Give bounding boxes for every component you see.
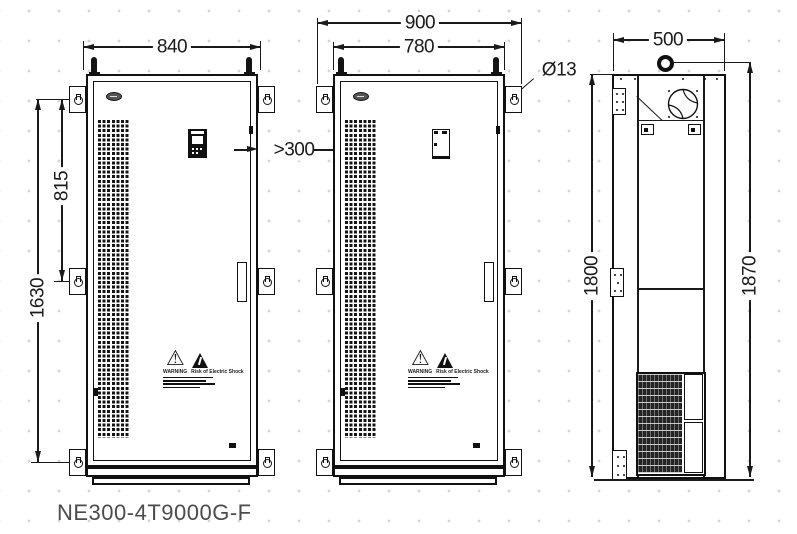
model-label: NE300-4T9000G-F	[57, 500, 252, 526]
cabinet-plinth	[339, 477, 497, 485]
dim-500-label: 500	[649, 30, 687, 51]
door-handle	[237, 262, 247, 302]
keyhole-icon	[510, 276, 517, 287]
hole-diameter-label: Ø13	[538, 60, 580, 81]
keyhole-icon	[74, 94, 81, 105]
warning-triangle-icon: ⚠	[411, 348, 430, 368]
dim-1870-label: 1870	[740, 252, 761, 300]
cabinet-base-band	[86, 467, 258, 477]
dim-1800-label: 1800	[582, 252, 603, 300]
arrowhead-icon	[333, 44, 344, 50]
terminal-plate	[610, 268, 624, 297]
arrowhead-icon	[747, 466, 753, 477]
shock-caption: Risk of Electric Shock	[436, 369, 489, 375]
arrowhead-icon	[511, 20, 522, 26]
cabinet-base-band	[333, 467, 505, 477]
mounting-bracket	[505, 268, 522, 295]
shelf-divider-line	[638, 288, 703, 290]
mounting-bracket	[69, 86, 86, 113]
engineering-drawing: 840 815 1630	[0, 0, 797, 534]
door-latch	[473, 443, 480, 448]
clamp-bracket	[641, 124, 654, 135]
lifting-ring-icon	[657, 55, 674, 72]
shock-caption: Risk of Electric Shock	[191, 369, 244, 375]
dimension-line	[313, 149, 335, 150]
arrowhead-icon	[59, 270, 65, 281]
door-hinge	[94, 388, 98, 396]
extension-line	[521, 18, 522, 84]
door-hinge	[496, 126, 500, 134]
lifting-eyebolt-icon	[493, 57, 499, 74]
electric-shock-icon	[437, 353, 454, 368]
mounting-bracket	[316, 449, 333, 476]
arrowhead-icon	[613, 37, 624, 43]
mounting-bracket	[69, 268, 86, 295]
terminal-plate	[612, 88, 626, 115]
keyhole-icon	[74, 276, 81, 287]
arrowhead-icon	[589, 74, 595, 85]
mounting-bracket	[258, 268, 275, 295]
keyhole-icon	[263, 94, 270, 105]
lifting-eyebolt-icon	[246, 57, 252, 74]
mounting-bracket	[505, 449, 522, 476]
door-hinge	[249, 126, 253, 134]
warning-label: ⚠ WARNING Risk of Electric Shock	[163, 348, 229, 388]
dim-815-label: 815	[52, 167, 73, 205]
arrowhead-icon	[589, 466, 595, 477]
warning-triangle-icon: ⚠	[166, 348, 185, 368]
heatsink-fins	[638, 374, 682, 473]
vent-grille	[345, 120, 377, 438]
cabinet-plinth	[92, 477, 250, 485]
electric-shock-icon	[192, 353, 209, 368]
clearance-label: >300	[270, 140, 319, 161]
keyhole-icon	[321, 276, 328, 287]
fastener-dots	[620, 78, 622, 80]
arrowhead-icon	[747, 62, 753, 73]
mounting-bracket	[505, 86, 522, 113]
warning-text-lines	[408, 377, 474, 388]
mounting-bracket	[69, 449, 86, 476]
door-hinge	[341, 388, 345, 396]
ground-line	[594, 479, 754, 481]
keyhole-icon	[263, 276, 270, 287]
mounting-bracket	[258, 86, 275, 113]
arrowhead-icon	[35, 99, 41, 110]
extension-line	[672, 62, 750, 63]
keyhole-icon	[321, 94, 328, 105]
mounting-bracket	[316, 86, 333, 113]
warning-label: ⚠ WARNING Risk of Electric Shock	[408, 348, 474, 388]
fan-circle-icon	[665, 86, 701, 122]
arrowhead-icon	[247, 146, 258, 152]
mounting-bracket	[258, 449, 275, 476]
keyhole-icon	[74, 457, 81, 468]
lifting-eyebolt-icon	[91, 57, 97, 74]
heatsink-assembly	[636, 372, 706, 476]
dim-1630-label: 1630	[28, 274, 49, 322]
extension-line	[317, 18, 318, 84]
clamp-bracket	[688, 124, 701, 135]
door-latch	[229, 443, 236, 448]
terminal-plate	[612, 450, 627, 481]
warning-text-lines	[163, 377, 229, 388]
keypad	[188, 129, 207, 158]
keypad-cutout	[432, 129, 450, 159]
keyhole-icon	[510, 94, 517, 105]
keyhole-icon	[321, 457, 328, 468]
arrowhead-icon	[714, 37, 725, 43]
fan-box	[684, 422, 703, 473]
dimension-line	[234, 149, 248, 150]
warning-caption: WARNING	[163, 369, 187, 375]
keyhole-icon	[510, 457, 517, 468]
door-handle	[484, 262, 494, 302]
arrowhead-icon	[83, 44, 94, 50]
warning-caption: WARNING	[408, 369, 432, 375]
arrowhead-icon	[494, 44, 505, 50]
keyhole-icon	[263, 457, 270, 468]
dim-840-label: 840	[153, 37, 191, 58]
dim-780-label: 780	[400, 37, 438, 58]
dim-900-label: 900	[401, 13, 439, 34]
vent-grille	[98, 120, 130, 438]
arrowhead-icon	[250, 44, 261, 50]
arrowhead-icon	[59, 99, 65, 110]
arrowhead-icon	[317, 20, 328, 26]
logo-badge	[353, 92, 369, 101]
mounting-bracket	[316, 268, 333, 295]
fan-box	[684, 374, 703, 420]
logo-badge	[106, 92, 122, 101]
arrowhead-icon	[35, 451, 41, 462]
lifting-eyebolt-icon	[338, 57, 344, 74]
